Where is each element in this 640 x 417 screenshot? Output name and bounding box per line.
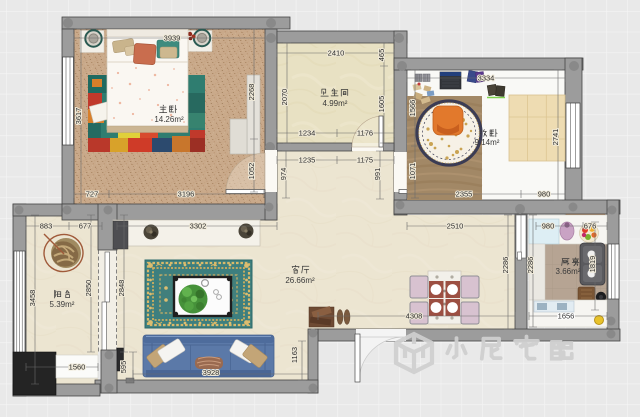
svg-text:1235: 1235 [299, 156, 316, 165]
svg-text:4.99m²: 4.99m² [323, 99, 348, 108]
svg-text:2355: 2355 [456, 190, 473, 199]
svg-text:14.26m²: 14.26m² [154, 115, 184, 124]
svg-text:2268: 2268 [247, 84, 256, 101]
svg-text:1560: 1560 [69, 363, 86, 372]
svg-text:3617: 3617 [74, 108, 83, 125]
svg-text:5.39m²: 5.39m² [50, 300, 75, 309]
svg-text:1605: 1605 [377, 96, 386, 113]
svg-text:1176: 1176 [357, 129, 373, 138]
svg-text:2850: 2850 [84, 280, 93, 297]
svg-text:991: 991 [373, 168, 382, 181]
svg-text:2510: 2510 [447, 222, 464, 231]
svg-text:595: 595 [119, 361, 128, 374]
svg-text:3302: 3302 [190, 222, 207, 231]
svg-text:677: 677 [79, 222, 92, 231]
svg-text:3458: 3458 [28, 290, 37, 307]
svg-text:980: 980 [538, 190, 551, 199]
svg-text:2410: 2410 [328, 49, 345, 58]
svg-text:1234: 1234 [299, 129, 316, 138]
svg-text:2286: 2286 [501, 257, 510, 274]
svg-text:465: 465 [377, 49, 386, 62]
svg-text:1052: 1052 [247, 163, 256, 180]
svg-text:2848: 2848 [117, 280, 126, 297]
svg-text:676: 676 [584, 222, 597, 231]
svg-text:1163: 1163 [290, 347, 299, 363]
svg-text:974: 974 [279, 168, 288, 181]
svg-text:727: 727 [86, 190, 99, 199]
svg-text:4308: 4308 [406, 312, 423, 321]
svg-text:9.14m²: 9.14m² [475, 138, 500, 147]
svg-text:1656: 1656 [558, 312, 575, 321]
svg-text:3928: 3928 [203, 368, 220, 377]
svg-text:883: 883 [40, 222, 53, 231]
svg-text:3334: 3334 [478, 74, 495, 83]
svg-text:1566: 1566 [408, 100, 417, 117]
svg-text:3.66m²: 3.66m² [556, 267, 581, 276]
svg-text:2286: 2286 [526, 257, 535, 274]
svg-text:26.66m²: 26.66m² [285, 276, 315, 285]
svg-text:2070: 2070 [280, 89, 289, 106]
svg-text:1175: 1175 [357, 156, 373, 165]
svg-text:980: 980 [542, 222, 555, 231]
svg-text:2741: 2741 [551, 129, 560, 146]
svg-text:1819: 1819 [588, 256, 597, 273]
svg-text:3196: 3196 [178, 190, 195, 199]
svg-text:3939: 3939 [164, 34, 181, 43]
svg-text:1071: 1071 [408, 163, 417, 180]
